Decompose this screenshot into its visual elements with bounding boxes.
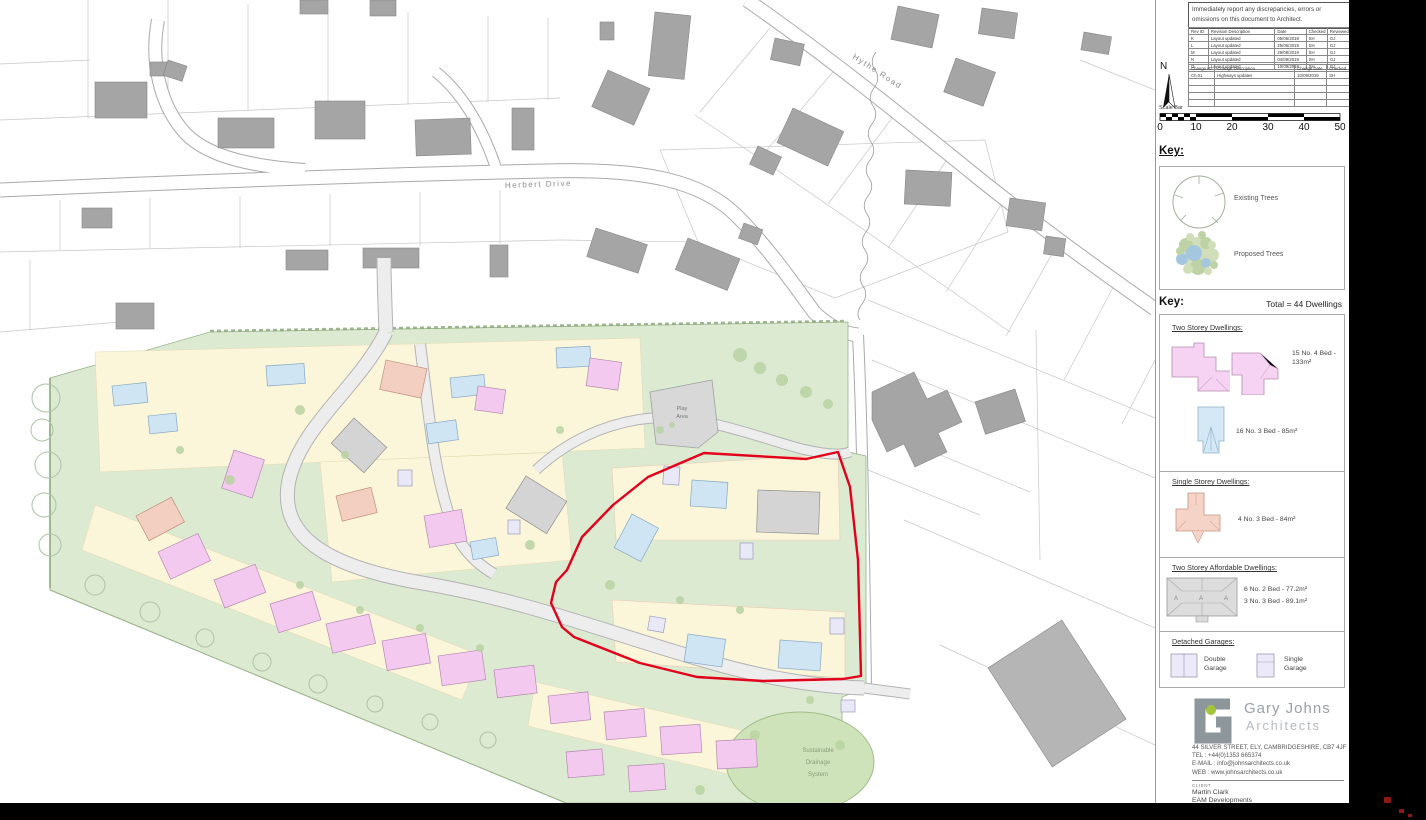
four-bed-spec: 15 No. 4 Bed - 133m² (1292, 349, 1342, 367)
title-block-panel: Immediately report any discrepancies, er… (1155, 0, 1350, 805)
scale-tick-30: 30 (1262, 122, 1273, 133)
architect-tel: TEL : +44(0)1353 665374 (1192, 752, 1346, 760)
discrepancy-warning: Immediately report any discrepancies, er… (1188, 2, 1354, 29)
architect-email: E-MAIL : info@johnsarchitects.co.uk (1192, 760, 1346, 768)
svg-text:A: A (1174, 596, 1178, 602)
trees-key-box: Existing Trees Proposed Trees (1159, 166, 1345, 290)
play-area: Play Area (650, 380, 718, 448)
suds-label-line1: Sustainable (802, 748, 834, 754)
architect-contact: 44 SILVER STREET, ELY, CAMBRIDGESHIRE, C… (1192, 744, 1346, 777)
dwellings-key-box: Two Storey Dwellings: 15 No. 4 Bed - 133… (1159, 314, 1345, 688)
scale-bar (1158, 113, 1344, 122)
single-garage-label: Single Garage (1284, 655, 1326, 673)
client-name: Martin Clark (1192, 789, 1229, 796)
single-storey-house-icon (1172, 491, 1230, 551)
drawing-sheet: Play Area Sustainable Drainage System (0, 0, 1426, 820)
suds-label-line3: System (808, 772, 828, 778)
play-area-label-line2: Area (676, 414, 689, 420)
four-bed-house-icon-a (1168, 339, 1230, 397)
render-artifact-dot (1399, 809, 1404, 813)
scale-tick-0: 0 (1157, 122, 1163, 133)
trees-key-title: Key: (1159, 145, 1184, 157)
architect-name: Gary Johns (1244, 700, 1331, 717)
total-dwellings: Total = 44 Dwellings (1266, 299, 1342, 309)
proposed-tree-icon (1168, 225, 1228, 285)
scale-bar-label: Scale Bar (1159, 105, 1183, 111)
bottom-letterbox-bar (0, 803, 1426, 820)
client-divider (1192, 780, 1344, 781)
render-artifact-dot (1384, 797, 1391, 803)
right-letterbox-bar (1349, 0, 1426, 820)
change-table: Change IDChange DescriptionChange DateCh… (1188, 64, 1352, 107)
garages-heading: Detached Garages: (1172, 637, 1234, 646)
dwellings-key-title: Key: (1159, 296, 1184, 308)
existing-trees-label: Existing Trees (1234, 195, 1278, 202)
svg-text:A: A (1199, 596, 1203, 602)
double-garage-icon (1170, 653, 1198, 679)
double-garage-label: Double Garage (1204, 655, 1246, 673)
client-label: CLIENT (1192, 783, 1211, 788)
scale-tick-10: 10 (1190, 122, 1201, 133)
render-artifact-dot (1408, 814, 1412, 817)
suds-label-line2: Drainage (806, 760, 831, 766)
scale-tick-50: 50 (1334, 122, 1345, 133)
affordable-heading: Two Storey Affordable Dwellings: (1172, 563, 1277, 572)
affordable-house-icon: A A A (1166, 577, 1240, 625)
single-storey-heading: Single Storey Dwellings: (1172, 477, 1250, 486)
architect-logo-icon (1184, 694, 1240, 750)
key-divider-2 (1160, 557, 1344, 558)
scale-tick-40: 40 (1298, 122, 1309, 133)
scale-tick-20: 20 (1226, 122, 1237, 133)
existing-tree-icon (1170, 173, 1228, 231)
two-storey-heading: Two Storey Dwellings: (1172, 323, 1243, 332)
road-label-herbert-drive: Herbert Drive (505, 179, 572, 190)
key-divider-1 (1160, 471, 1344, 472)
architect-address: 44 SILVER STREET, ELY, CAMBRIDGESHIRE, C… (1192, 744, 1346, 752)
svg-text:A: A (1224, 596, 1228, 602)
single-garage-icon (1256, 653, 1276, 679)
three-bed-spec: 16 No. 3 Bed - 85m² (1236, 427, 1340, 436)
three-bed-house-icon (1196, 405, 1228, 459)
architect-name-sub: Architects (1246, 719, 1321, 733)
play-area-label-line1: Play (677, 406, 688, 412)
site-plan-drawing: Play Area Sustainable Drainage System (0, 0, 1155, 805)
affordable-spec-1: 6 No. 2 Bed - 77.2m² (1244, 585, 1340, 594)
north-arrow-label: N (1160, 61, 1167, 72)
four-bed-house-icon-b (1230, 343, 1288, 395)
site-plan-map[interactable]: Play Area Sustainable Drainage System (0, 0, 1155, 805)
single-storey-spec: 4 No. 3 Bed - 84m² (1238, 515, 1340, 524)
affordable-spec-2: 3 No. 3 Bed - 89.1m² (1244, 597, 1340, 606)
key-divider-3 (1160, 631, 1344, 632)
architect-web: WEB : www.johnsarchitects.co.uk (1192, 769, 1346, 777)
proposed-trees-label: Proposed Trees (1234, 251, 1283, 258)
